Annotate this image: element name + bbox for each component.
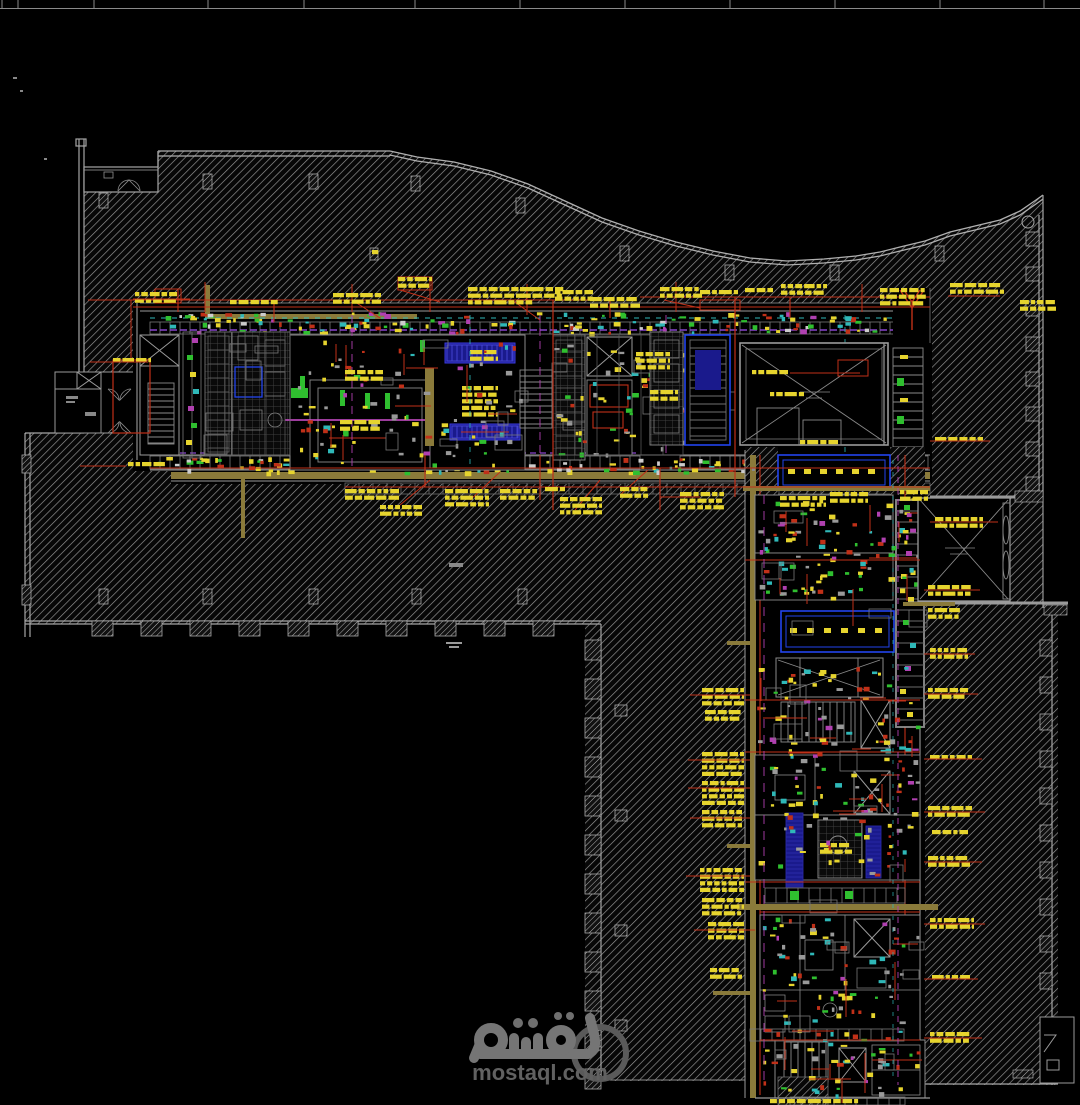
svg-text:mostaql.com: mostaql.com	[472, 1060, 608, 1085]
